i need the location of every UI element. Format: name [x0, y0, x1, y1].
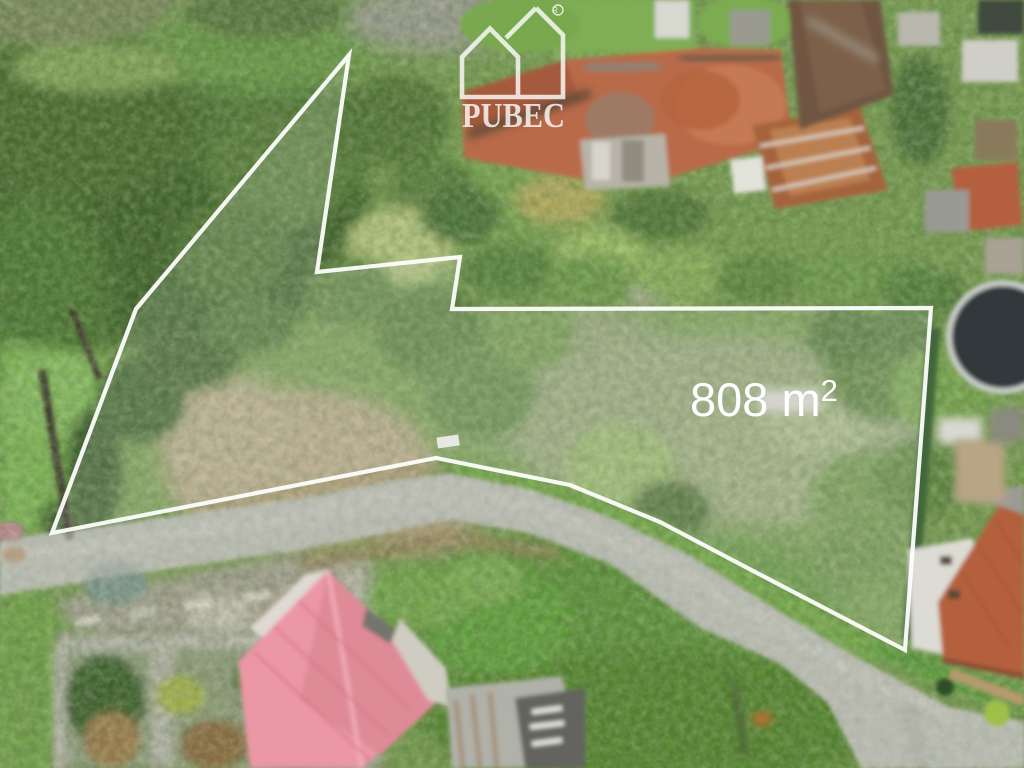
svg-text:808 m2: 808 m2	[690, 373, 838, 426]
svg-text:R: R	[552, 6, 558, 15]
svg-text:PUBEC: PUBEC	[462, 96, 565, 135]
